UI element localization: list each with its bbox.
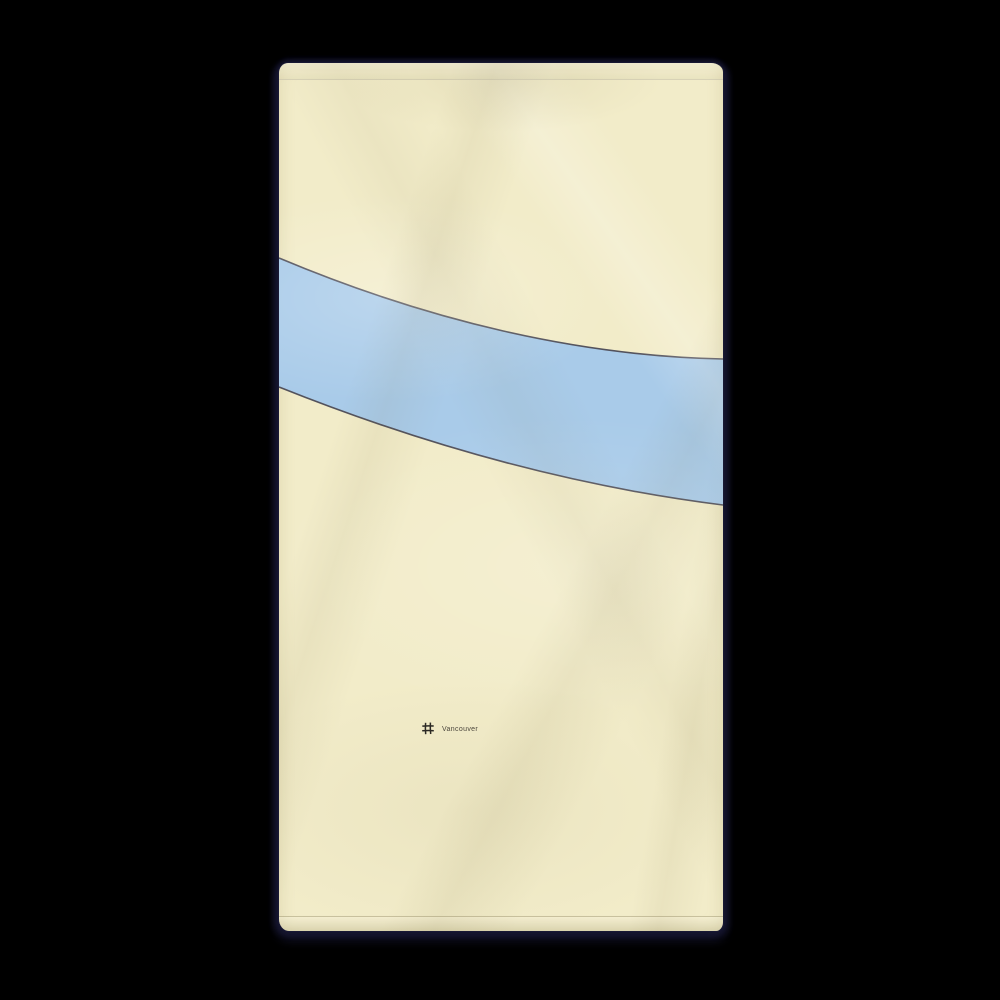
river-band-fill — [279, 258, 723, 505]
towel-top-hem — [279, 63, 723, 80]
towel-bottom-hem — [279, 916, 723, 931]
photo-stage: Vancouver — [0, 0, 1000, 1000]
river-band — [279, 63, 723, 931]
towel-mockup: Vancouver — [279, 63, 723, 931]
grid-hash-icon-strokes — [422, 723, 434, 735]
brand-label: Vancouver — [442, 725, 478, 733]
grid-hash-icon — [422, 722, 434, 735]
brand-logo: Vancouver — [422, 721, 478, 736]
